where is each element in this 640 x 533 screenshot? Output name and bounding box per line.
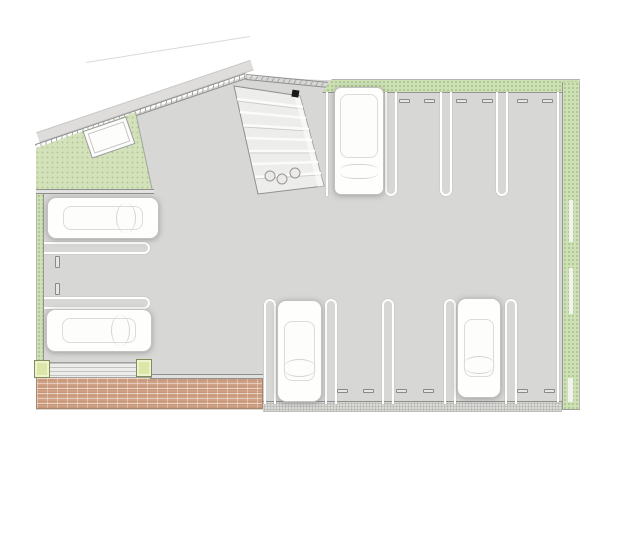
stall-divider	[505, 299, 517, 404]
east-strip-path-gap	[569, 200, 573, 242]
stall-divider	[264, 299, 276, 404]
terrace-curb-line	[150, 374, 263, 379]
wheel-stop	[55, 283, 60, 295]
planter-post	[34, 360, 50, 378]
planter-post	[136, 359, 152, 377]
round-container	[277, 174, 287, 184]
wheel-stop	[482, 99, 493, 103]
stall-divider	[325, 299, 337, 404]
pergola-fence	[36, 362, 152, 378]
van-top-row	[334, 87, 384, 195]
wheel-stop	[399, 99, 410, 103]
east-edge-marking-line	[557, 92, 559, 402]
car-bottom-right	[457, 298, 501, 398]
outer-road-edge-line	[86, 36, 250, 63]
outbuilding-structure	[228, 78, 332, 202]
wheel-stop	[363, 389, 374, 393]
curb-line	[36, 189, 154, 194]
wheel-stop	[544, 389, 555, 393]
wheel-stop	[424, 99, 435, 103]
wheel-stop	[423, 389, 434, 393]
wheel-stop	[542, 99, 553, 103]
east-strip-path-gap	[568, 378, 573, 402]
stall-divider	[382, 299, 394, 404]
wheel-stop	[456, 99, 467, 103]
car-left-bottom	[46, 309, 152, 352]
stall-divider	[385, 92, 397, 196]
stall-divider	[496, 92, 508, 196]
corner-marker	[291, 90, 299, 98]
wheel-stop	[337, 389, 348, 393]
stall-divider	[44, 242, 150, 254]
wheel-stop	[517, 99, 528, 103]
car-bottom-middle	[277, 300, 322, 402]
stall-divider	[440, 92, 452, 196]
wheel-stop	[55, 256, 60, 268]
car-left-top	[47, 197, 159, 239]
wheel-stop	[517, 389, 528, 393]
stall-divider	[444, 299, 456, 404]
site-plan-canvas	[0, 0, 640, 533]
stall-divider	[44, 297, 150, 309]
west-landscape-strip	[36, 190, 44, 380]
wheel-stop	[396, 389, 407, 393]
east-landscape-strip	[562, 82, 580, 410]
gravel-strip	[263, 401, 562, 412]
round-container	[265, 171, 275, 181]
round-container	[290, 168, 300, 178]
brick-terrace	[36, 377, 263, 409]
east-strip-path-gap	[569, 268, 573, 314]
